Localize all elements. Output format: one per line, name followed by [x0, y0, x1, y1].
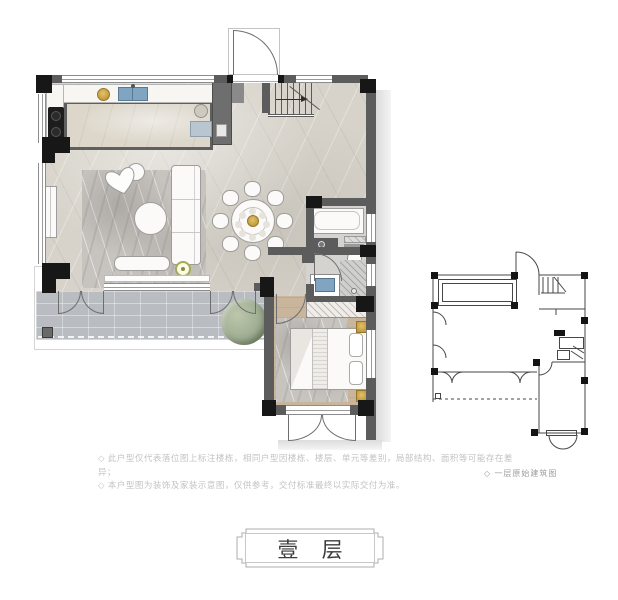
dining-plate: [249, 208, 256, 215]
shower-drain: [351, 288, 357, 294]
wall-bath-west-upper: [306, 206, 314, 254]
bedroom-east-window: [366, 330, 376, 378]
column: [306, 196, 322, 208]
column: [42, 263, 70, 279]
sink-faucet: [131, 84, 135, 88]
entry-side-window: [296, 75, 332, 83]
column: [278, 75, 284, 83]
bedroom-south-door-arc: [322, 415, 356, 441]
column: [356, 296, 374, 312]
sofa: [171, 165, 201, 265]
kitchen-sink: [118, 87, 148, 101]
floorplan-page: ◇ 一层原始建筑图 ◇ 此户型仅代表落位图上标注楼栋，相同户型因楼栋、楼层、单元…: [0, 0, 618, 600]
terrace-drain: [42, 327, 53, 338]
bed-runner: [312, 329, 328, 389]
kitchen-teapot: [194, 104, 208, 118]
disclaimer-line-2: ◇ 本户型图为装饰及家装示意图，仅供参考，交付标准最终以实际交付为准。: [98, 479, 518, 493]
pillow: [349, 333, 363, 357]
column: [42, 279, 56, 293]
dining-chair: [212, 213, 229, 229]
column: [36, 75, 52, 93]
entry-threshold: [233, 81, 278, 82]
dining-chair: [244, 181, 261, 197]
coffee-table: [134, 202, 167, 235]
pillow: [349, 361, 363, 385]
building-shadow-east: [376, 90, 391, 442]
wall-east: [366, 79, 376, 440]
bath-east-window-upper: [366, 214, 376, 242]
kitchen-tray: [190, 121, 212, 137]
column: [360, 245, 376, 257]
mini-columns: [431, 272, 588, 436]
column: [42, 137, 70, 153]
kitchen-window: [62, 75, 214, 83]
dining-chair: [267, 190, 284, 206]
column: [360, 79, 376, 93]
dining-chair: [276, 213, 293, 229]
dining-chair: [222, 190, 239, 206]
floor-ornament-dot: [181, 267, 185, 271]
bathtub-inner: [314, 211, 360, 230]
bath-east-window-lower: [366, 264, 376, 286]
cooking-pot: [97, 88, 110, 101]
west-window-lower: [38, 163, 46, 264]
dining-chair: [222, 236, 239, 252]
bedroom-south-window: [286, 405, 350, 415]
wall-stair-west: [262, 83, 270, 113]
dining-chair: [244, 245, 261, 261]
mini-walls: [433, 252, 585, 449]
stair-direction-arrow: [276, 99, 302, 100]
towel-radiator: [344, 236, 366, 243]
column: [262, 400, 276, 416]
original-building-diagram: [421, 247, 611, 462]
bedroom-south-door-arc: [288, 415, 322, 441]
floor-title-plaque: 壹 层: [236, 528, 384, 568]
disclaimer-line-1: ◇ 此户型仅代表落位图上标注楼栋，相同户型因楼栋、楼层、单元等差别，局部结构、面…: [98, 452, 518, 479]
column: [42, 153, 55, 163]
floor-title: 壹 层: [236, 534, 384, 564]
bench: [114, 256, 170, 271]
cabinet-handle: [216, 124, 227, 137]
building-shadow-south: [278, 440, 382, 450]
cooktop-burner: [51, 127, 61, 137]
living-south-window: [104, 283, 210, 291]
west-window-upper: [38, 94, 46, 143]
column: [260, 277, 274, 297]
window-planter: [104, 275, 210, 282]
disclaimer-notes: ◇ 此户型仅代表落位图上标注楼栋，相同户型因楼栋、楼层、单元等差别，局部结构、面…: [98, 452, 518, 493]
wall-bedroom-west: [264, 286, 274, 410]
table-centerpiece: [247, 215, 259, 227]
wall-partition-stub: [302, 255, 314, 263]
column: [358, 400, 374, 416]
entry-cabinet: [232, 83, 244, 103]
cooktop-burner: [51, 111, 61, 121]
stair-rail: [268, 114, 314, 117]
